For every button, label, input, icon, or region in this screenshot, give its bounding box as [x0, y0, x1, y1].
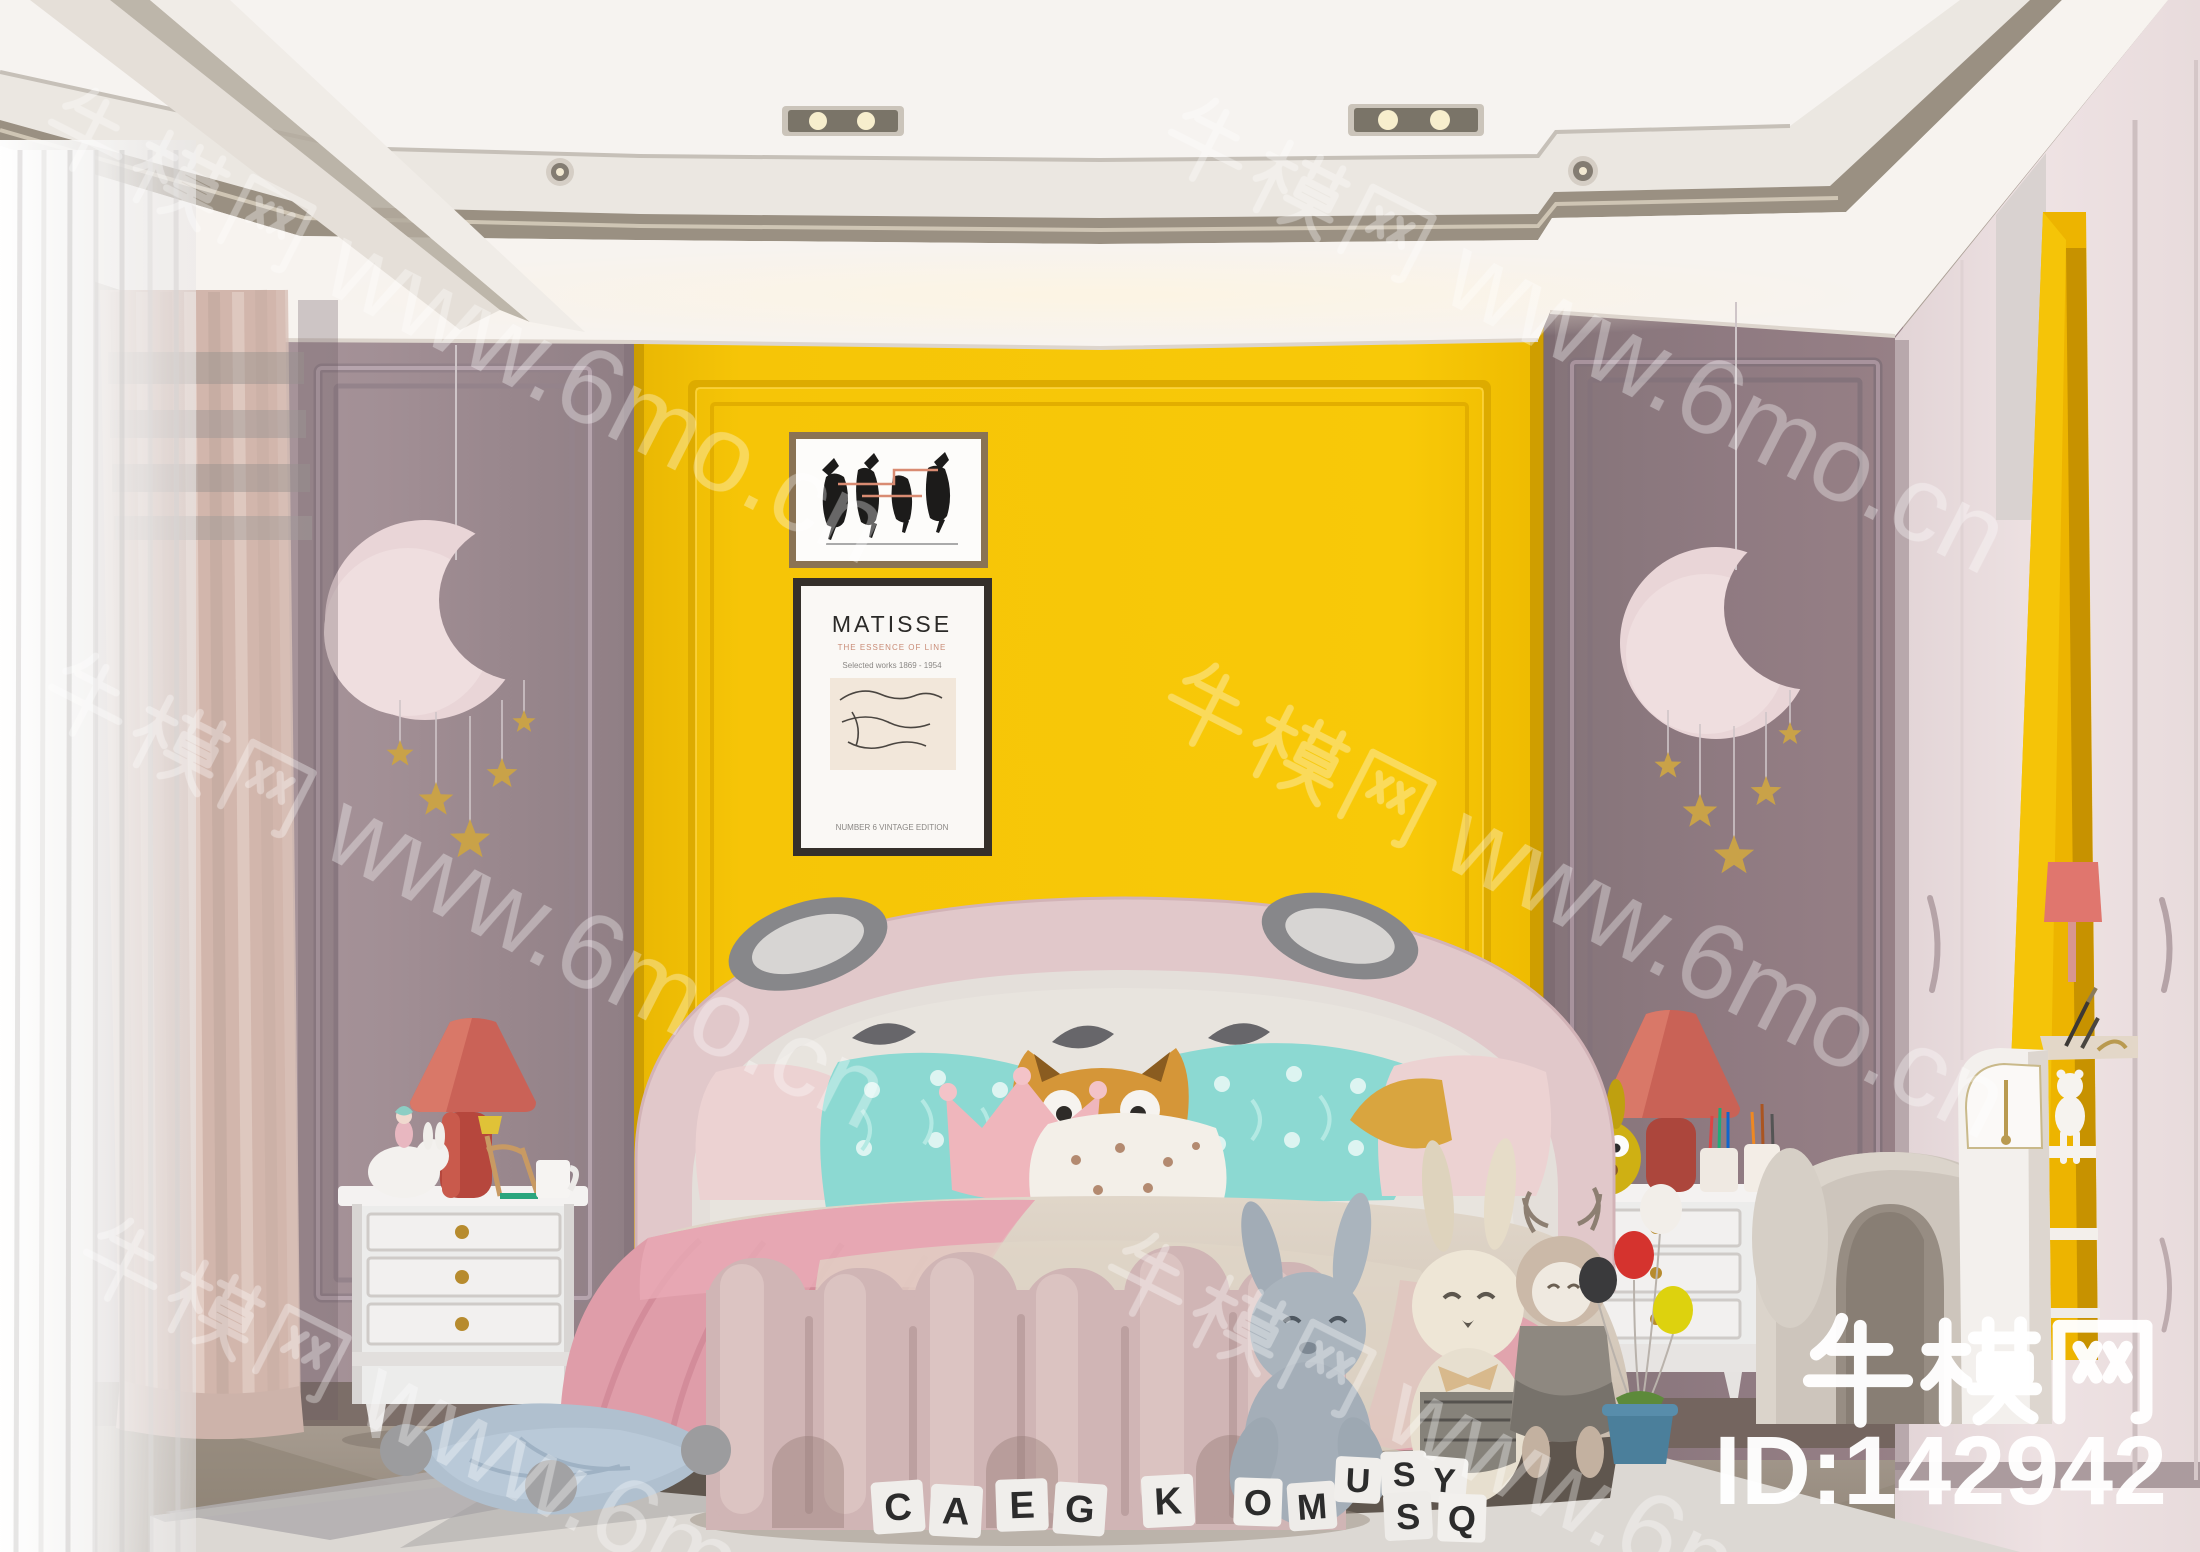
svg-text:M: M [1296, 1485, 1329, 1528]
svg-text:Selected works 1869 - 1954: Selected works 1869 - 1954 [842, 661, 942, 670]
svg-text:A: A [941, 1490, 971, 1533]
svg-text:U: U [1345, 1461, 1372, 1500]
svg-text:C: C [883, 1486, 913, 1530]
svg-text:THE ESSENCE OF LINE: THE ESSENCE OF LINE [838, 643, 947, 652]
svg-text:K: K [1153, 1480, 1183, 1523]
svg-text:MATISSE: MATISSE [832, 611, 952, 637]
svg-text:E: E [1009, 1485, 1036, 1528]
svg-text:ID:142942: ID:142942 [1714, 1416, 2167, 1525]
svg-text:O: O [1243, 1482, 1272, 1524]
svg-text:S: S [1395, 1495, 1421, 1537]
svg-text:G: G [1064, 1488, 1096, 1532]
svg-text:NUMBER 6 VINTAGE EDITION: NUMBER 6 VINTAGE EDITION [836, 823, 949, 832]
